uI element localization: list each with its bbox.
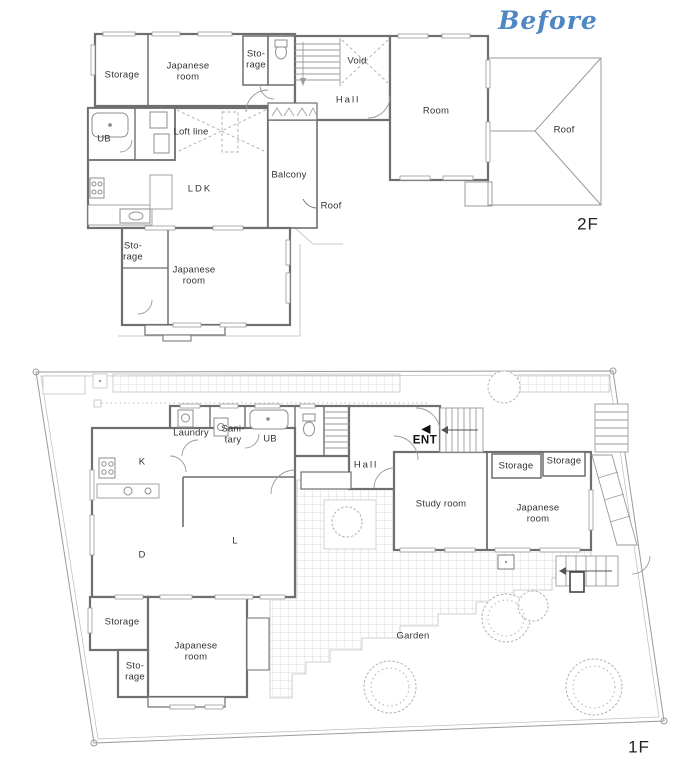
floor-plan-drawing (0, 0, 680, 762)
japanese-room-bottom-1f (148, 597, 247, 697)
walkway-tiles (43, 374, 610, 407)
slope-steps (592, 455, 637, 545)
storage-bottom-1f (90, 597, 148, 650)
kdl-block-1f (92, 428, 295, 597)
toilet-1f-icon (304, 422, 315, 436)
floor-1f-plan (33, 368, 667, 746)
side-steps (592, 404, 637, 545)
storage-small-1f (118, 650, 148, 697)
engawa-1f (247, 618, 269, 670)
entrance-steps (440, 408, 483, 452)
storage-right-1f (543, 452, 585, 476)
sanitary-sink-icon (214, 418, 228, 436)
floor-plan-page: Before Storage Japanese room Sto- rage V… (0, 0, 680, 762)
step-2f (163, 335, 191, 341)
room-2f-storage-small (243, 36, 268, 85)
washer-icon (178, 410, 193, 427)
tree-garden-2 (518, 591, 548, 621)
stove-2f-icon (90, 178, 104, 198)
tree-entrance (488, 371, 520, 403)
sink-2f-icon (120, 209, 150, 223)
counter-1f-icon (97, 484, 159, 498)
floor-2f-plan (88, 32, 601, 341)
stove-1f-icon (99, 458, 115, 478)
closet-1f (301, 472, 351, 489)
tree-terrace (332, 507, 362, 537)
closet-2f (268, 103, 317, 120)
tree-garden-4 (566, 659, 622, 715)
storage-mid-1f (492, 454, 541, 478)
room-2f-room (390, 36, 488, 180)
balcony-2f (268, 120, 317, 228)
tree-garden-3 (364, 661, 416, 713)
